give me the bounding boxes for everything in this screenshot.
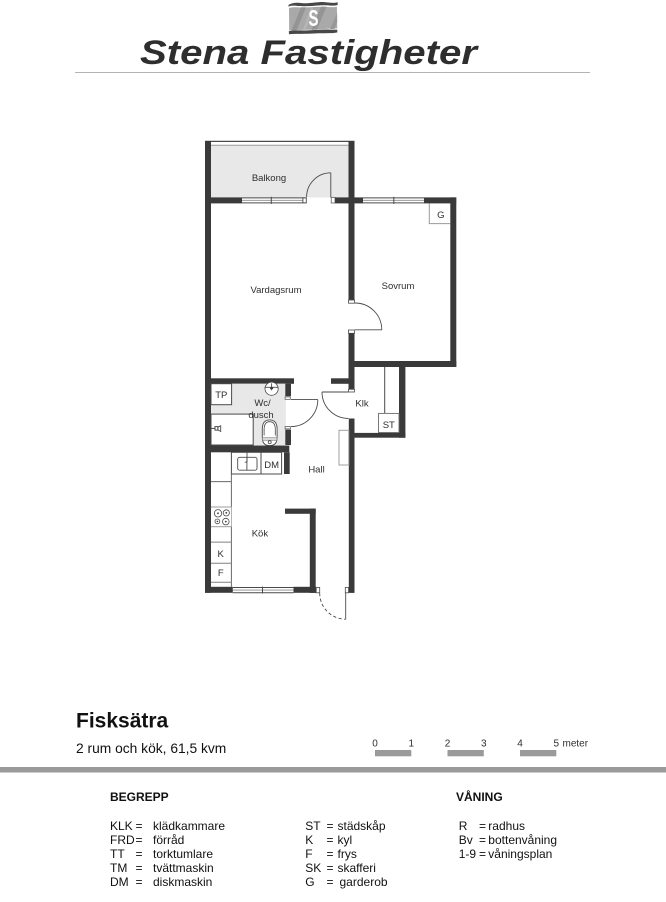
svg-text:5: 5 [554, 739, 560, 750]
svg-text:förråd: förråd [153, 833, 184, 847]
svg-text:TT: TT [110, 847, 125, 861]
svg-text:F: F [218, 568, 224, 579]
svg-text:F: F [305, 847, 312, 861]
svg-text:Hall: Hall [308, 464, 324, 475]
svg-text:=: = [136, 833, 143, 847]
svg-text:radhus: radhus [488, 819, 525, 833]
svg-text:frys: frys [338, 847, 357, 861]
svg-text:3: 3 [481, 739, 487, 750]
svg-text:SK: SK [305, 861, 321, 875]
svg-text:R: R [459, 819, 468, 833]
svg-text:4: 4 [517, 739, 523, 750]
svg-text:Fisksätra: Fisksätra [76, 710, 169, 733]
svg-text:=: = [479, 833, 486, 847]
svg-text:KLK: KLK [110, 819, 133, 833]
svg-text:=: = [327, 861, 334, 875]
svg-text:G: G [305, 875, 314, 889]
svg-text:DM: DM [110, 875, 129, 889]
svg-text:Vardagsrum: Vardagsrum [250, 285, 301, 296]
svg-text:Stena Fastigheter: Stena Fastigheter [140, 34, 479, 72]
svg-text:K: K [305, 833, 313, 847]
svg-text:städskåp: städskåp [338, 819, 386, 833]
svg-text:=: = [327, 847, 334, 861]
svg-text:dusch: dusch [248, 410, 273, 421]
svg-text:BEGREPP: BEGREPP [110, 790, 169, 804]
svg-text:garderob: garderob [340, 875, 388, 889]
svg-text:ST: ST [305, 819, 321, 833]
svg-text:=: = [327, 875, 334, 889]
svg-text:0: 0 [372, 739, 378, 750]
svg-text:2 rum och kök, 61,5 kvm: 2 rum och kök, 61,5 kvm [76, 741, 226, 756]
svg-text:tvättmaskin: tvättmaskin [153, 861, 214, 875]
svg-text:G: G [437, 210, 444, 221]
svg-text:klädkammare: klädkammare [153, 819, 225, 833]
svg-text:bottenvåning: bottenvåning [488, 833, 557, 847]
svg-text:Wc/: Wc/ [254, 398, 271, 409]
svg-text:torktumlare: torktumlare [153, 847, 213, 861]
svg-text:Klk: Klk [355, 398, 368, 409]
svg-text:2: 2 [445, 739, 451, 750]
svg-text:diskmaskin: diskmaskin [153, 875, 212, 889]
svg-text:FRD: FRD [110, 833, 135, 847]
svg-text:Kök: Kök [252, 529, 269, 540]
svg-text:Bv: Bv [459, 833, 473, 847]
svg-text:1: 1 [409, 739, 415, 750]
svg-text:=: = [136, 847, 143, 861]
svg-text:S: S [309, 5, 319, 31]
svg-text:=: = [327, 819, 334, 833]
svg-text:1-9: 1-9 [459, 847, 477, 861]
svg-text:meter: meter [563, 739, 589, 750]
svg-text:=: = [327, 833, 334, 847]
svg-text:TM: TM [110, 861, 127, 875]
svg-text:TP: TP [215, 390, 227, 401]
svg-text:skafferi: skafferi [338, 861, 376, 875]
svg-text:våningsplan: våningsplan [488, 847, 552, 861]
svg-text:kyl: kyl [338, 833, 353, 847]
svg-text:ST: ST [383, 420, 395, 431]
svg-text:DM: DM [264, 460, 279, 471]
svg-text:=: = [479, 847, 486, 861]
svg-text:=: = [479, 819, 486, 833]
svg-text:Sovrum: Sovrum [382, 281, 415, 292]
svg-text:K: K [218, 549, 225, 560]
svg-text:=: = [136, 861, 143, 875]
svg-text:VÅNING: VÅNING [456, 789, 503, 804]
svg-text:=: = [136, 819, 143, 833]
svg-text:=: = [136, 875, 143, 889]
svg-text:Balkong: Balkong [252, 173, 286, 184]
